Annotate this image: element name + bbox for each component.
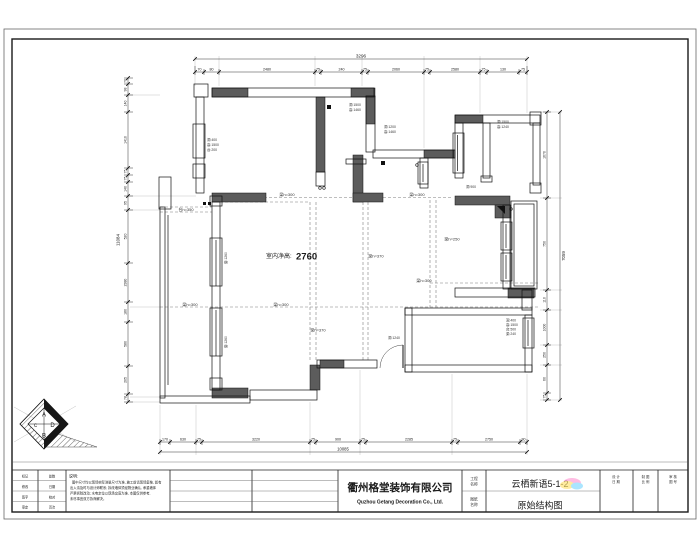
- rev-cell: 处数: [49, 474, 56, 479]
- window-label: 高:1500: [506, 322, 518, 327]
- window-label: 洞:400: [207, 137, 217, 142]
- titleblock-col-check: 图 号: [669, 479, 677, 484]
- dim-right-seg: 1670: [542, 151, 546, 159]
- beam-label: 梁h=300: [279, 191, 295, 197]
- dim-top-seg: 75: [363, 68, 367, 72]
- dim-left-seg: 2380: [123, 279, 127, 287]
- dim-top-seg: 80: [210, 68, 214, 72]
- rev-cell: 审定: [22, 505, 29, 510]
- notes-line: 出入请及时与设计师联系; 拆改墙体须经物业确认, 承重墙体: [70, 485, 157, 490]
- floorplan-sheet: A D B c 3296 70 80 2480 75 240 75 2060 7…: [0, 0, 700, 560]
- dim-bottom-seg: 170: [162, 438, 168, 442]
- logo-letter-bottom: B: [42, 434, 46, 440]
- dim-top-seg: 2060: [392, 68, 400, 72]
- project-name: 云栖新语5-1-2: [511, 478, 568, 489]
- dim-left-seg: 205: [123, 377, 127, 383]
- dim-top-seg: 75: [482, 68, 486, 72]
- titleblock-col-check: 审 核: [669, 474, 677, 479]
- ceiling-height-value: 2760: [296, 252, 317, 263]
- dim-left-seg: 75: [123, 170, 127, 174]
- dim-bottom-seg: 80: [522, 438, 526, 442]
- dim-left-seg: 520: [123, 234, 127, 240]
- dim-top-seg: 75: [316, 68, 320, 72]
- notes-line: 图中尺寸均以现场实际测量尺寸为准, 施工前请现场复核, 如有: [72, 480, 162, 485]
- dim-right-seg: 60: [542, 377, 546, 381]
- dim-right-overall: 7059: [561, 251, 566, 261]
- window-label: 台:500: [506, 327, 516, 332]
- dim-top-seg: 75: [521, 68, 525, 72]
- dim-bottom-seg: 900: [335, 438, 341, 442]
- rev-cell: 日期: [49, 484, 55, 489]
- dim-bottom-seg: 75: [361, 438, 365, 442]
- dim-bottom-seg: 2285: [405, 438, 413, 442]
- dim-left-seg: 70: [123, 79, 127, 83]
- dim-top-seg: 130: [500, 68, 506, 72]
- beam-label: 梁h=370: [310, 327, 326, 333]
- window-label: 高:1240: [497, 124, 509, 129]
- dim-bottom-overall: 10085: [337, 447, 349, 452]
- window-label: 洞:400: [506, 318, 516, 323]
- notes-line: 未尽事宜双方协商解决。: [70, 496, 106, 501]
- dim-left-overall: 11084: [116, 234, 121, 246]
- company-name-cn: 衢州格堂装饰有限公司: [348, 481, 453, 494]
- rev-cell: 校对: [49, 495, 56, 500]
- dim-top-seg: 2480: [263, 68, 271, 72]
- rev-cell: 修改: [22, 484, 29, 489]
- dim-right-seg: 110: [542, 297, 546, 303]
- window-label: 洞:1500: [349, 102, 361, 107]
- dim-right-seg: 750: [542, 241, 546, 247]
- titleblock-col-draw: 制 图: [642, 474, 650, 479]
- rev-cell: 标记: [22, 474, 29, 479]
- drawing-canvas: A D B c 3296 70 80 2480 75 240 75 2060 7…: [0, 0, 700, 560]
- dim-left-seg: 1410: [123, 136, 127, 144]
- drawing-name: 原始结构图: [517, 500, 562, 511]
- dim-top-seg: 2580: [451, 68, 459, 72]
- window-label: 洞:1240: [388, 335, 400, 340]
- company-name-en: Quzhou Getang Decoration Co., Ltd.: [357, 500, 444, 506]
- window-label: 窗:1260: [223, 252, 228, 264]
- beam-label: 梁h=250: [444, 236, 460, 242]
- dim-left-seg: 140: [123, 186, 127, 192]
- dim-right-seg: 75: [542, 395, 546, 399]
- window-label: 高:1460: [384, 129, 396, 134]
- window-label: 高:1500: [207, 142, 219, 147]
- window-label: 台:200: [207, 147, 217, 152]
- window-label: 洞:1200: [384, 124, 396, 129]
- dim-bottom-seg: 630: [180, 438, 186, 442]
- beam-label: 梁h=300: [182, 301, 198, 307]
- dim-top-overall: 3296: [356, 54, 367, 59]
- dim-left-seg: 140: [123, 101, 127, 107]
- dim-top-seg: 75: [425, 68, 429, 72]
- dim-bottom-seg: 75: [453, 438, 457, 442]
- ceiling-height-label: 室内净高:: [266, 252, 292, 260]
- window-label: 窗:1260: [223, 336, 228, 348]
- logo-letter-left: c: [34, 423, 37, 429]
- project-label: 名称: [470, 482, 478, 487]
- notes-line: 严禁拆除改动; 水电定位以现场交底为准, 本图仅供参考,: [70, 491, 150, 496]
- dim-bottom-seg: 3220: [252, 438, 260, 442]
- beam-label: 梁h=370: [368, 253, 384, 259]
- titleblock-col-design: 日 期: [612, 479, 620, 484]
- dim-left-seg: 180: [123, 309, 127, 315]
- beam-label: 梁h=300: [409, 191, 425, 197]
- beam-label: 梁h=300: [416, 277, 432, 283]
- dim-left-seg: 75: [123, 177, 127, 181]
- dim-right-seg: 250: [542, 352, 546, 358]
- logo-letter-top: A: [42, 413, 46, 419]
- window-label: 洞:900: [466, 184, 476, 189]
- rev-cell: 页次: [49, 505, 56, 510]
- project-label: 工程: [470, 476, 478, 481]
- dim-bottom-seg: 75: [311, 438, 315, 442]
- titleblock-col-design: 设 计: [612, 474, 620, 479]
- rev-cell: 签字: [22, 495, 28, 500]
- dim-left-seg: 98: [123, 88, 127, 92]
- dim-top-seg: 240: [339, 68, 345, 72]
- window-label: 高:1460: [349, 107, 361, 112]
- dim-left-seg: 78: [123, 396, 127, 400]
- notes-title: 说明:: [69, 473, 78, 479]
- sill-label: 台h=350: [178, 206, 194, 212]
- dim-top-seg: 70: [198, 68, 202, 72]
- titleblock-col-draw: 比 例: [642, 479, 650, 484]
- dim-bottom-seg: 2750: [485, 438, 493, 442]
- logo-letter-right: D: [50, 423, 55, 429]
- window-label: 洞:1500: [497, 119, 509, 124]
- dim-left-seg: 580: [123, 341, 127, 347]
- beam-label: 梁h=300: [273, 301, 289, 307]
- dim-right-seg: 1000: [542, 324, 546, 332]
- drawing-label: 名称: [470, 502, 478, 507]
- drawing-label: 图纸: [470, 497, 478, 502]
- dim-left-seg: 95: [123, 201, 127, 205]
- dim-bottom-seg: 75: [197, 438, 201, 442]
- window-label: 梁:240: [506, 331, 516, 336]
